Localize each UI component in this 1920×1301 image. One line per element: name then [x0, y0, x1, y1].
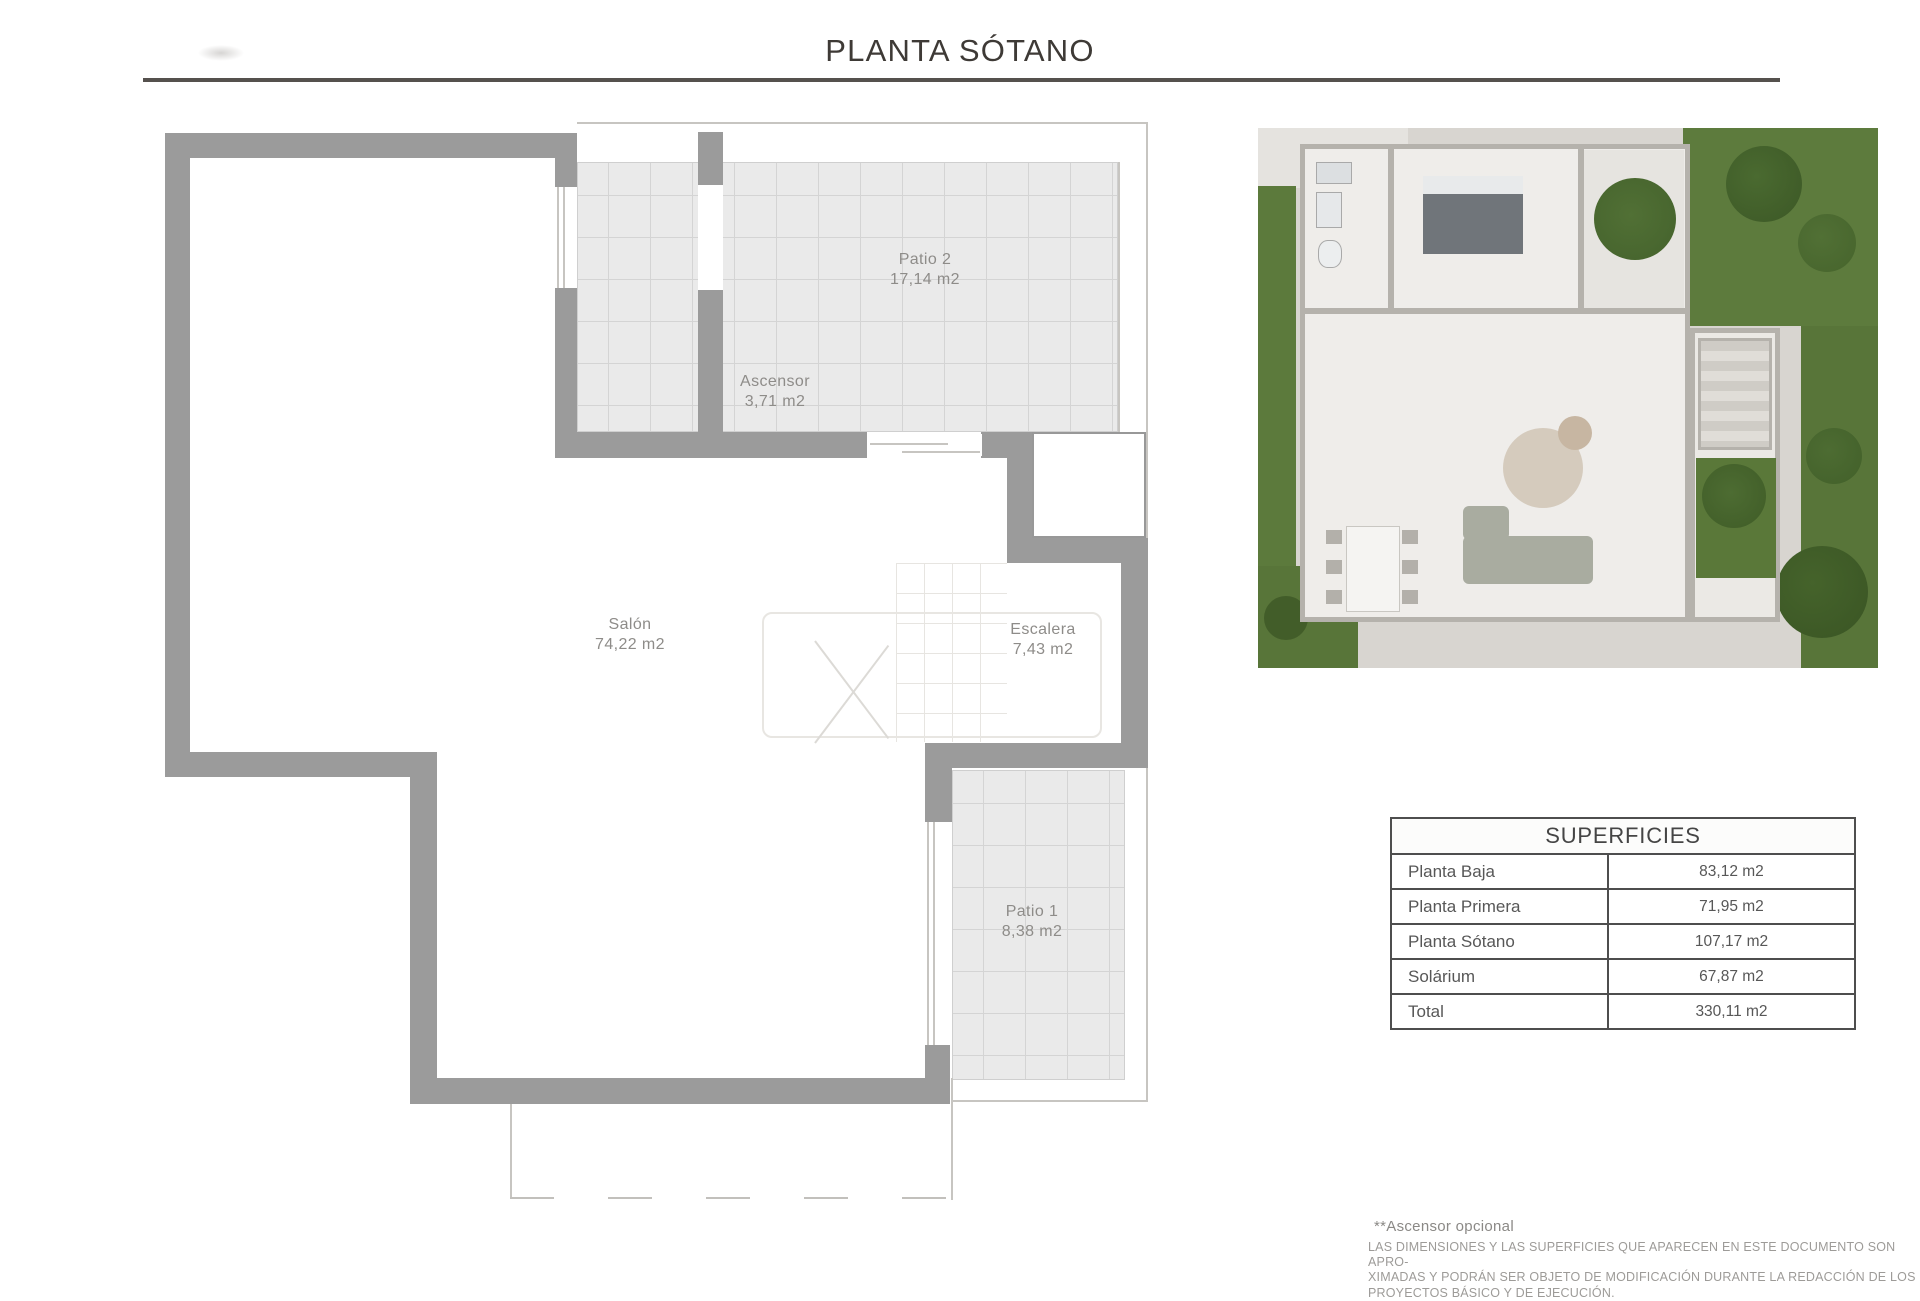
render-bed-pillows	[1423, 176, 1523, 194]
window-ascensor-line-a	[557, 187, 559, 288]
row-value: 67,87 m2	[1607, 960, 1854, 993]
render-chair	[1326, 560, 1342, 574]
patio2-tiles	[577, 162, 1118, 432]
window-ascensor-line-b	[563, 187, 565, 288]
table-row: Planta Sótano 107,17 m2	[1392, 925, 1854, 960]
porch-line-right	[951, 1078, 953, 1200]
disclaimer-line: PROYECTOS BÁSICO Y DE EJECUCIÓN.	[1368, 1286, 1920, 1301]
wall-step-horizontal	[190, 752, 437, 777]
render-stairs	[1698, 338, 1772, 450]
row-label: Solárium	[1392, 960, 1607, 993]
table-row: Solárium 67,87 m2	[1392, 960, 1854, 995]
patio2-tile-edge	[1118, 162, 1120, 432]
title-rule	[143, 78, 1780, 82]
render-chair	[1402, 590, 1418, 604]
wall-left	[165, 133, 190, 777]
room-area: 74,22 m2	[550, 635, 710, 655]
footer-disclaimer: LAS DIMENSIONES Y LAS SUPERFICIES QUE AP…	[1368, 1240, 1920, 1301]
row-value: 107,17 m2	[1607, 925, 1854, 958]
room-name: Ascensor	[705, 372, 845, 392]
room-area: 7,43 m2	[963, 640, 1123, 660]
sliding-door-leaf-b	[902, 451, 980, 453]
wall-ascensor-left-bottom	[555, 288, 577, 432]
window-patio1-line-a	[927, 822, 929, 1045]
floorplan-sheet: { "page": { "title": "PLANTA SÓTANO" }, …	[0, 0, 1920, 1280]
porch-line-left	[510, 1104, 512, 1198]
render-courtyard-bush	[1594, 178, 1676, 260]
room-area: 8,38 m2	[952, 922, 1112, 942]
wall-room-bottom	[1032, 538, 1148, 563]
label-salon: Salón 74,22 m2	[550, 615, 710, 655]
room-area: 17,14 m2	[845, 270, 1005, 290]
table-row: Planta Primera 71,95 m2	[1392, 890, 1854, 925]
table-row: Planta Baja 83,12 m2	[1392, 855, 1854, 890]
label-patio1: Patio 1 8,38 m2	[952, 902, 1112, 942]
room-name: Patio 2	[845, 250, 1005, 270]
wall-room-left	[1007, 458, 1032, 563]
render-3d-topview	[1258, 128, 1878, 668]
render-tree-4	[1776, 546, 1868, 638]
wall-bottom	[410, 1078, 950, 1104]
room-name: Salón	[550, 615, 710, 635]
render-chair	[1402, 530, 1418, 544]
disclaimer-line: LAS DIMENSIONES Y LAS SUPERFICIES QUE AP…	[1368, 1240, 1920, 1270]
row-label: Planta Sótano	[1392, 925, 1607, 958]
render-wall-c	[1300, 308, 1690, 314]
render-sofa	[1463, 536, 1593, 584]
row-label: Planta Baja	[1392, 855, 1607, 888]
wall-top	[165, 133, 577, 158]
label-escalera: Escalera 7,43 m2	[963, 620, 1123, 660]
row-value: 83,12 m2	[1607, 855, 1854, 888]
patio1-outline-bottom	[952, 1100, 1148, 1102]
render-lawn-left	[1258, 186, 1296, 566]
row-label: Planta Primera	[1392, 890, 1607, 923]
render-bath-vanity	[1316, 162, 1352, 184]
render-chair	[1402, 560, 1418, 574]
page-title: PLANTA SÓTANO	[0, 33, 1920, 69]
table-header: SUPERFICIES	[1392, 819, 1854, 855]
wall-ascensor-bottom-right	[981, 432, 1032, 458]
wall-bottom-riser	[925, 1045, 950, 1078]
footer-note: **Ascensor opcional	[1374, 1218, 1514, 1235]
window-patio1-line-b	[933, 822, 935, 1045]
superficies-table: SUPERFICIES Planta Baja 83,12 m2 Planta …	[1390, 817, 1856, 1030]
render-rug-small	[1558, 416, 1592, 450]
render-wall-a	[1388, 144, 1394, 314]
patio-outline-top	[577, 122, 1148, 124]
wall-ascensor-right-top	[698, 132, 723, 185]
render-garden-bush	[1702, 464, 1766, 528]
row-label: Total	[1392, 995, 1607, 1028]
wall-step-vertical	[410, 777, 437, 1080]
render-chair	[1326, 590, 1342, 604]
room-area: 3,71 m2	[705, 392, 845, 412]
wall-ascensor-bottom	[555, 432, 867, 458]
label-ascensor: Ascensor 3,71 m2	[705, 372, 845, 412]
door-ascensor-gap	[698, 185, 723, 290]
room-name: Patio 1	[952, 902, 1112, 922]
label-patio2: Patio 2 17,14 m2	[845, 250, 1005, 290]
wall-escalera-right	[1121, 563, 1148, 768]
render-chair	[1326, 530, 1342, 544]
wall-ascensor-left-top	[555, 158, 577, 188]
utility-room	[1032, 432, 1146, 538]
render-dining-table	[1346, 526, 1400, 612]
print-artifact-smudge	[198, 45, 244, 61]
render-bath-wc	[1318, 240, 1342, 268]
sliding-door-leaf-a	[870, 443, 948, 445]
row-value: 330,11 m2	[1607, 995, 1854, 1028]
room-name: Escalera	[963, 620, 1123, 640]
disclaimer-line: XIMADAS Y PODRÁN SER OBJETO DE MODIFICAC…	[1368, 1270, 1920, 1285]
render-tree-2	[1798, 214, 1856, 272]
row-value: 71,95 m2	[1607, 890, 1854, 923]
porch-line-bottom-dashed	[510, 1197, 953, 1199]
render-tree-3	[1806, 428, 1862, 484]
table-row: Total 330,11 m2	[1392, 995, 1854, 1028]
render-tree-1	[1726, 146, 1802, 222]
render-bath-shower	[1316, 192, 1342, 228]
render-sofa-chaise	[1463, 506, 1509, 540]
wall-patio1-top	[925, 743, 1148, 768]
